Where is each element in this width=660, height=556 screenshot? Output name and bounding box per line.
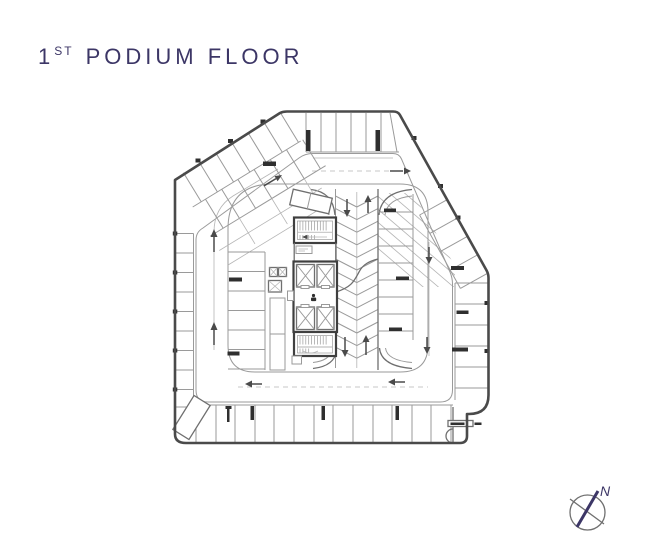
stair-door (292, 356, 302, 364)
parking-stalls-bottom (173, 396, 453, 443)
angled-stall-pair-core (290, 189, 333, 214)
ramp-chevrons (336, 189, 379, 368)
parking-stalls-left (175, 234, 194, 408)
elevator-door (301, 305, 309, 308)
elevator-door (301, 286, 309, 289)
elevator-door (322, 286, 330, 289)
parking-stalls-top (306, 113, 399, 152)
lobby-door (288, 291, 294, 301)
elevator-door (322, 305, 330, 308)
floor-plan-drawing: N (0, 0, 660, 556)
core-label-box (296, 246, 312, 254)
person-icon (312, 294, 315, 297)
compass-rose: N (570, 483, 611, 530)
compass-north-label: N (600, 483, 611, 499)
ramp-hatch (360, 155, 470, 327)
core (288, 189, 338, 364)
angled-stall-bottom-left (173, 396, 210, 440)
parking-stalls-right (455, 283, 489, 400)
